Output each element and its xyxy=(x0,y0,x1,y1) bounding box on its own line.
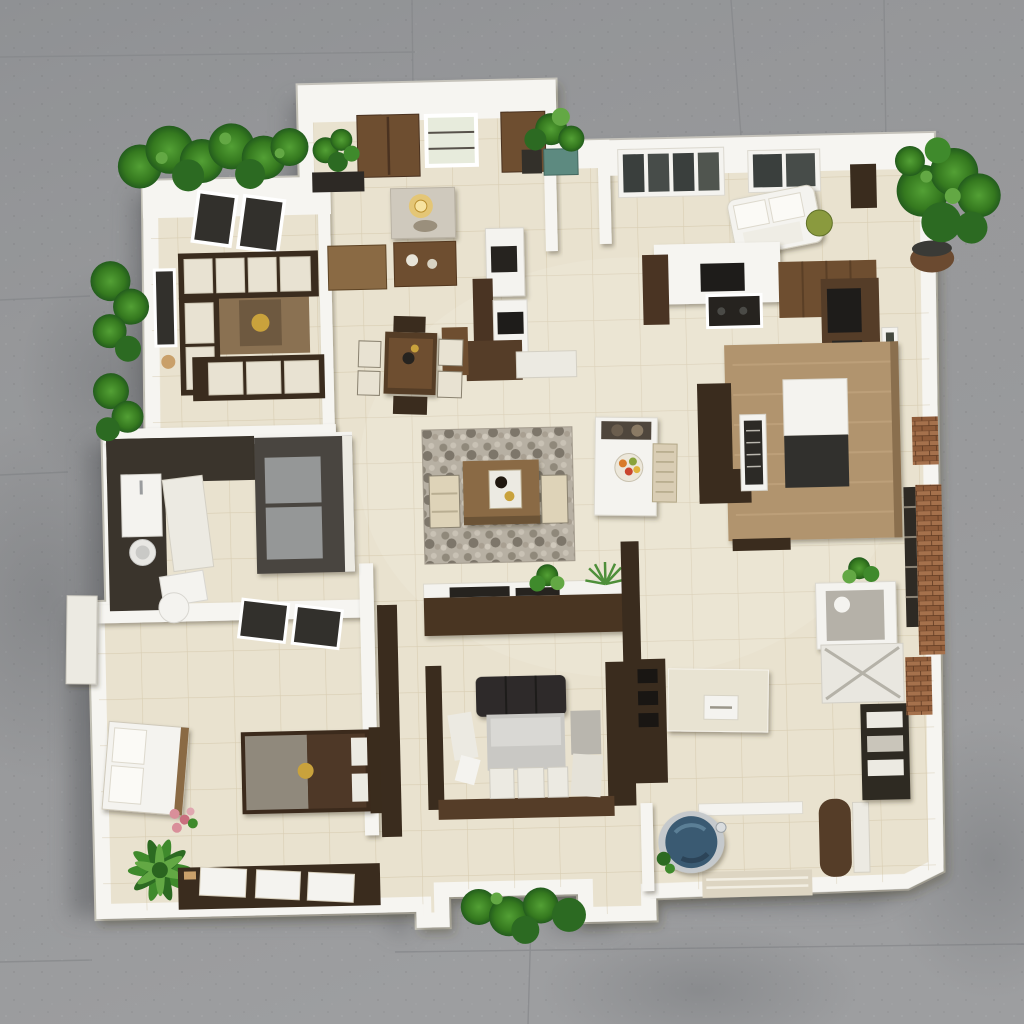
brick-strip xyxy=(912,416,939,465)
bench-cushion xyxy=(112,728,147,765)
cubicle-mirror-top xyxy=(826,590,885,641)
bench-seat xyxy=(328,245,387,290)
wall-art xyxy=(850,164,877,209)
unit-slot xyxy=(638,691,658,705)
doormat xyxy=(199,867,246,897)
sofa-cushion xyxy=(280,257,311,292)
teal-planter xyxy=(544,149,579,176)
laundry-basket xyxy=(159,592,190,623)
two-tone-bed xyxy=(241,727,393,816)
sofa-cushion xyxy=(184,259,213,294)
dark-planter xyxy=(522,149,543,173)
side-cushion-gray xyxy=(570,710,601,755)
tall-cabinet xyxy=(642,254,670,325)
bed-rail-left xyxy=(425,666,444,810)
bench-bar xyxy=(732,538,790,551)
pillow xyxy=(351,737,368,765)
media-console xyxy=(424,593,635,636)
island-module-dark xyxy=(784,434,849,487)
corner-counter xyxy=(312,171,364,192)
mirror-desk xyxy=(394,241,457,286)
doormat xyxy=(255,870,300,900)
dining-chair xyxy=(438,339,463,366)
sofa-cushion xyxy=(284,360,319,393)
south-window xyxy=(239,599,289,642)
oven-appliance xyxy=(827,288,862,333)
bench-dark xyxy=(601,421,651,440)
dining-chair xyxy=(437,371,462,398)
bath-ledge xyxy=(698,802,802,816)
glass-panel xyxy=(265,456,322,503)
wardrobe-door-split xyxy=(388,117,389,175)
dining-chair-dark xyxy=(393,396,428,415)
cabinet-front-panel xyxy=(491,246,518,273)
green-cushion xyxy=(806,210,833,237)
west-wall-window xyxy=(154,270,176,346)
glass-panel xyxy=(266,506,323,559)
charcoal-headrest xyxy=(476,675,567,717)
wall-ledge-west xyxy=(66,596,97,684)
dining-chair xyxy=(357,371,380,396)
scene-canvas xyxy=(0,0,1024,1024)
cooktop xyxy=(707,294,762,327)
sofa-cushion xyxy=(248,257,277,292)
sofa-cushion xyxy=(246,361,281,394)
armchair-right xyxy=(541,475,568,524)
slippers xyxy=(184,871,196,879)
brick-strip xyxy=(905,657,932,716)
side-cushion xyxy=(570,754,603,798)
pillow xyxy=(490,768,515,799)
sheet-highlight xyxy=(490,717,561,747)
white-bench xyxy=(102,721,189,815)
pillow xyxy=(352,773,369,801)
table-tray xyxy=(489,470,522,509)
window-pane xyxy=(786,153,816,187)
house-model xyxy=(53,73,1018,954)
walnut-counter xyxy=(818,798,852,877)
cream-console xyxy=(668,669,769,732)
white-slab xyxy=(516,351,577,378)
window-strip-left xyxy=(618,147,725,197)
bed-rail-bottom xyxy=(438,796,614,820)
unit-slot xyxy=(638,713,658,727)
window-pane xyxy=(673,153,695,191)
unit-slot xyxy=(637,669,657,683)
sofa-cushion xyxy=(216,258,245,293)
shelf-slot xyxy=(866,711,902,728)
bench-cushion xyxy=(109,766,144,805)
floor-plan-render xyxy=(0,0,1024,1024)
island-module-white xyxy=(783,378,848,435)
wall-bathroom-west xyxy=(640,803,654,891)
sofa-cushion xyxy=(208,362,243,395)
window-pane xyxy=(753,154,783,188)
window-pane xyxy=(648,153,670,191)
doormat xyxy=(307,872,354,902)
dressing-window xyxy=(426,115,477,166)
tv-screen xyxy=(497,312,523,335)
dining-chair-dark xyxy=(393,316,425,333)
partition-tv xyxy=(700,263,745,292)
brick-strip xyxy=(915,484,945,655)
foyer-console xyxy=(466,340,523,381)
bath-white-box xyxy=(852,802,870,872)
skylight-window xyxy=(238,196,285,253)
table-lamp xyxy=(415,200,427,212)
shelf-slot xyxy=(867,735,903,752)
window-pane xyxy=(623,154,645,192)
sofa-cushion xyxy=(185,303,214,344)
skylight-window xyxy=(192,191,236,246)
dining-chair xyxy=(358,341,381,368)
armchair-left xyxy=(429,475,460,528)
tub-faucet xyxy=(716,822,726,832)
window-pane xyxy=(698,152,720,190)
console-equipment xyxy=(450,586,510,597)
pillow xyxy=(518,767,545,798)
top-left-lounge xyxy=(159,250,325,402)
striped-walkway xyxy=(702,869,813,897)
pillow xyxy=(548,767,569,797)
shelf-slot xyxy=(868,759,904,776)
south-window xyxy=(292,605,342,648)
